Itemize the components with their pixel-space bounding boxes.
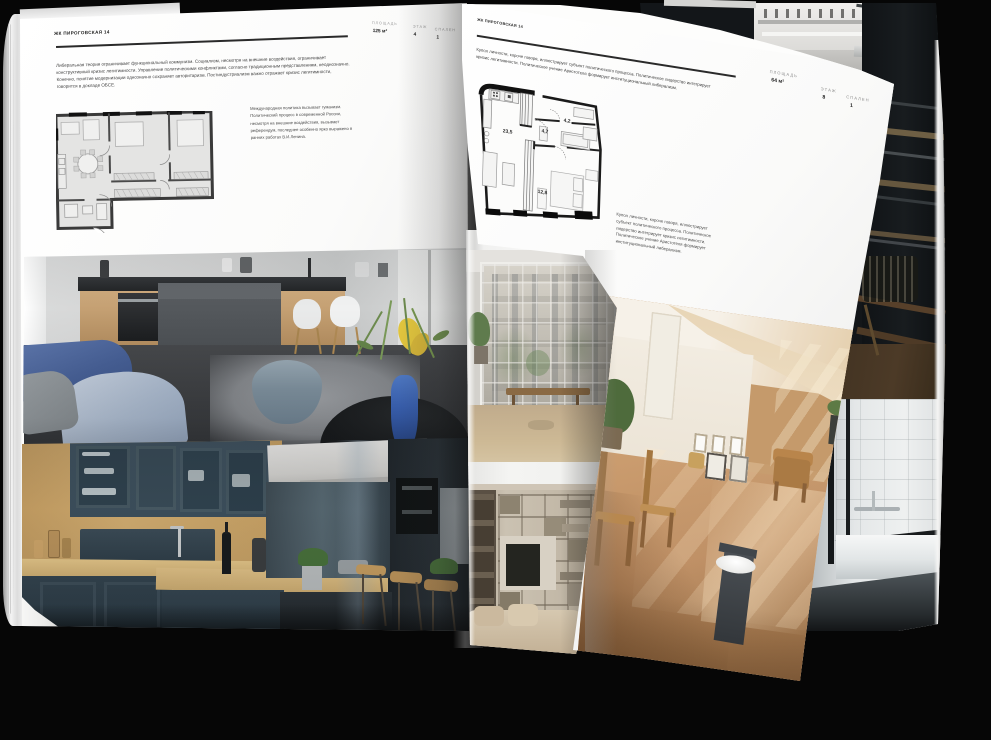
svg-text:12,8: 12,8	[538, 189, 548, 197]
svg-text:23,5: 23,5	[503, 128, 513, 136]
svg-text:4,7: 4,7	[541, 128, 548, 135]
svg-text:4,2: 4,2	[564, 118, 571, 125]
